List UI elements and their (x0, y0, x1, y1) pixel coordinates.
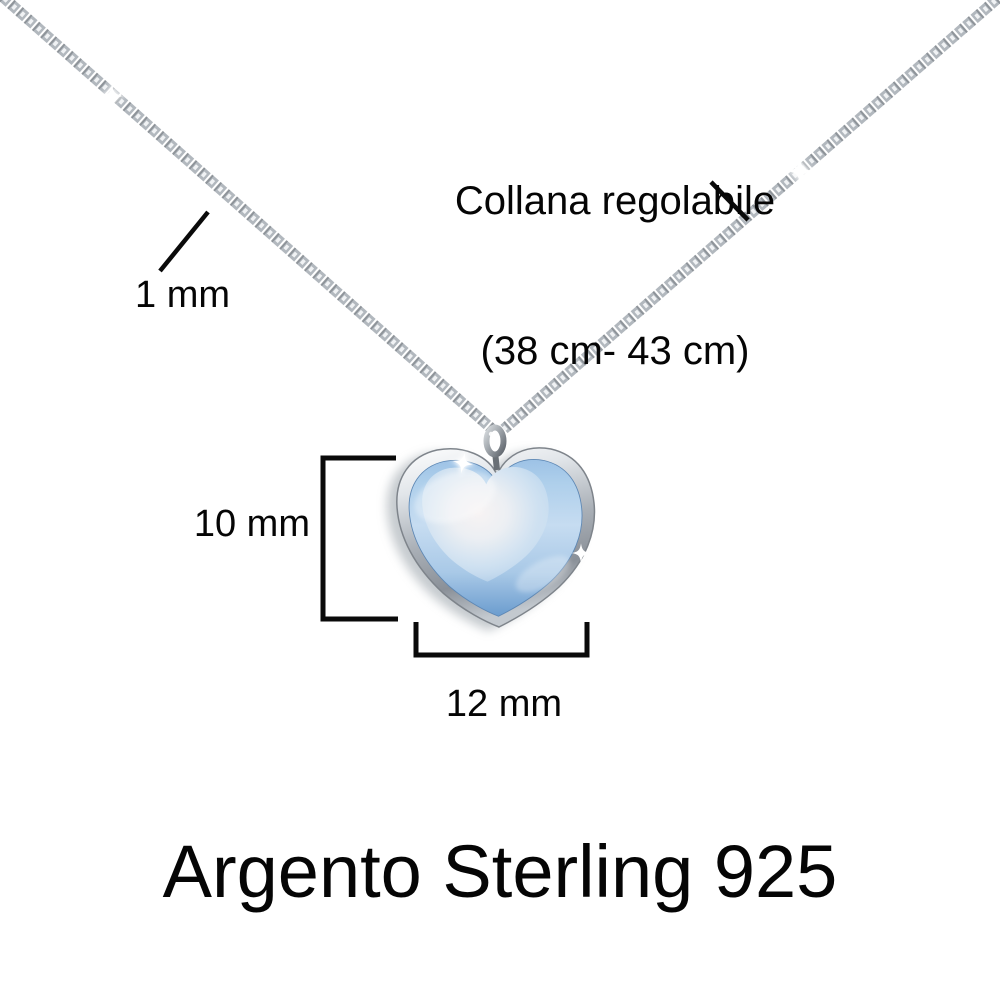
product-dimension-image: Collana regolabile (38 cm- 43 cm) 1 mm 1… (0, 0, 1000, 1000)
height-measure-bracket (323, 458, 398, 619)
material-caption: Argento Sterling 925 (0, 830, 1000, 914)
chain-thickness-leader-line (160, 212, 208, 271)
chain-note-line1: Collana regolabile (415, 176, 815, 226)
width-measure-bracket (416, 622, 587, 655)
chain-note-label: Collana regolabile (38 cm- 43 cm) (415, 76, 815, 476)
chain-note-line2: (38 cm- 43 cm) (415, 326, 815, 376)
pendant-height-label: 10 mm (140, 502, 310, 546)
pendant-width-label: 12 mm (404, 682, 604, 726)
chain-thickness-label: 1 mm (135, 273, 230, 317)
